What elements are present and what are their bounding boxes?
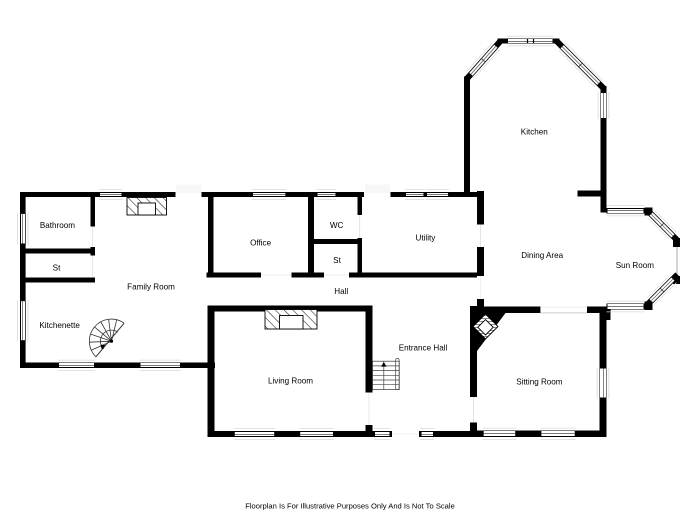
- svg-text:Floorplan Is For Illustrative: Floorplan Is For Illustrative Purposes O…: [245, 501, 455, 510]
- svg-text:Kitchen: Kitchen: [521, 127, 548, 136]
- svg-text:Hall: Hall: [334, 287, 348, 296]
- svg-text:St: St: [333, 256, 341, 265]
- svg-text:Bathroom: Bathroom: [40, 221, 75, 230]
- svg-text:Utility: Utility: [416, 234, 437, 243]
- svg-text:Kitchenette: Kitchenette: [39, 321, 80, 330]
- svg-text:Family Room: Family Room: [127, 282, 175, 291]
- svg-text:Sitting Room: Sitting Room: [516, 378, 563, 387]
- svg-text:WC: WC: [330, 221, 344, 230]
- svg-text:St: St: [53, 264, 61, 273]
- svg-text:Entrance Hall: Entrance Hall: [399, 344, 448, 353]
- svg-text:Dining Area: Dining Area: [521, 251, 563, 260]
- svg-text:Sun Room: Sun Room: [616, 261, 654, 270]
- svg-text:Living Room: Living Room: [268, 376, 313, 385]
- svg-text:Office: Office: [250, 239, 271, 248]
